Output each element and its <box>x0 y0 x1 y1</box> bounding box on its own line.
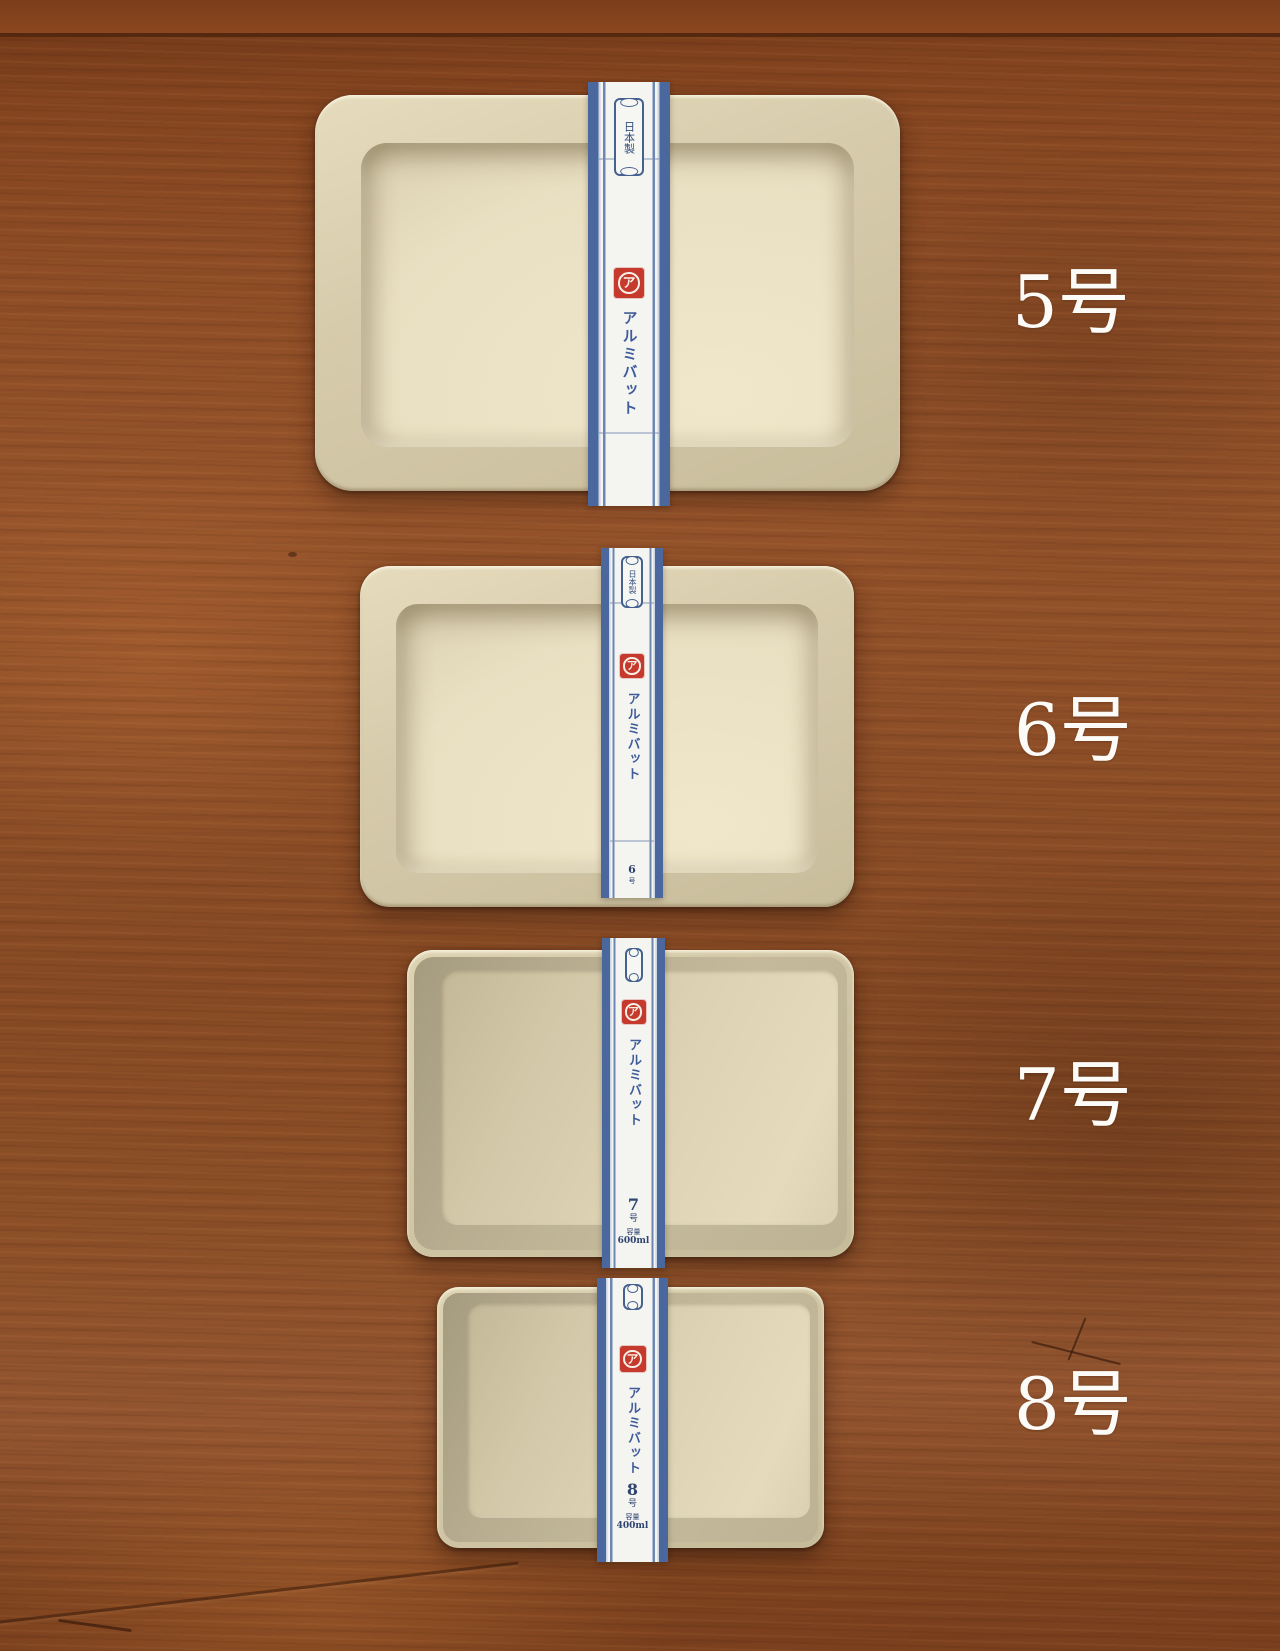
logo-glyph: ア <box>622 277 635 290</box>
size-caption-8: 8号 <box>1014 1368 1132 1440</box>
brand-logo-icon: ア <box>622 1000 646 1024</box>
wood-plank-seam-bottom <box>0 1561 518 1625</box>
band-capacity-value: 600ml <box>618 1236 650 1246</box>
brand-name-text: アルミバット <box>626 1386 639 1476</box>
band-capacity-label: 容量 <box>626 1513 640 1521</box>
wood-knot <box>288 552 297 557</box>
logo-circle: ア <box>623 1350 642 1369</box>
wood-plank-seam-top <box>0 0 1280 37</box>
logo-circle: ア <box>625 1003 642 1020</box>
size-caption-7: 7号 <box>1014 1059 1132 1131</box>
band-capacity-label: 容量 <box>627 1228 641 1236</box>
logo-glyph: ア <box>626 660 637 671</box>
brand-logo-icon: ア <box>614 268 644 298</box>
made-in-japan-seal: 日本製 <box>614 98 644 176</box>
band-size-unit: 号 <box>629 1214 638 1224</box>
brand-name-text: アルミバット <box>622 310 637 418</box>
brand-name-text: アルミバット <box>627 1038 640 1128</box>
logo-circle: ア <box>623 657 640 674</box>
photo-wooden-table: { "trays": [ { "name": "aluminum-tray-5"… <box>0 0 1280 1651</box>
packaging-band-6: 日本製 ア アルミバット 6 号 <box>601 548 663 898</box>
brand-name-text: アルミバット <box>626 692 639 782</box>
size-caption-6: 6号 <box>1014 694 1132 766</box>
made-in-japan-seal: 日本製 <box>621 556 643 608</box>
band-size-number: 6 <box>628 864 636 877</box>
band-size-unit: 号 <box>628 1499 637 1509</box>
band-size-unit: 号 <box>629 877 636 885</box>
logo-glyph: ア <box>626 1353 638 1365</box>
seal-text: 日本製 <box>628 570 636 594</box>
band-size-number: 7 <box>628 1196 639 1214</box>
size-caption-5: 5号 <box>1012 266 1130 338</box>
band-capacity-value: 400ml <box>617 1521 649 1531</box>
wood-scratch <box>58 1619 132 1632</box>
packaging-band-7: ア アルミバット 7 号 容量 600ml <box>602 938 665 1268</box>
band-size-block: 6 号 <box>610 864 655 888</box>
made-in-japan-seal <box>623 1284 643 1310</box>
band-size-block: 8 号 容量 400ml <box>607 1481 658 1531</box>
brand-logo-icon: ア <box>620 654 644 678</box>
packaging-band-8: ア アルミバット 8 号 容量 400ml <box>597 1278 668 1562</box>
logo-glyph: ア <box>628 1006 639 1017</box>
logo-circle: ア <box>618 272 640 294</box>
band-fold-line <box>610 840 655 842</box>
seal-text: 日本製 <box>624 121 635 154</box>
band-fold-line <box>599 432 658 434</box>
band-size-block: 7 号 容量 600ml <box>611 1196 656 1246</box>
packaging-band-5: 日本製 ア アルミバット <box>588 82 670 506</box>
brand-logo-icon: ア <box>620 1346 646 1372</box>
band-size-number: 8 <box>627 1481 638 1499</box>
made-in-japan-seal <box>625 948 643 982</box>
